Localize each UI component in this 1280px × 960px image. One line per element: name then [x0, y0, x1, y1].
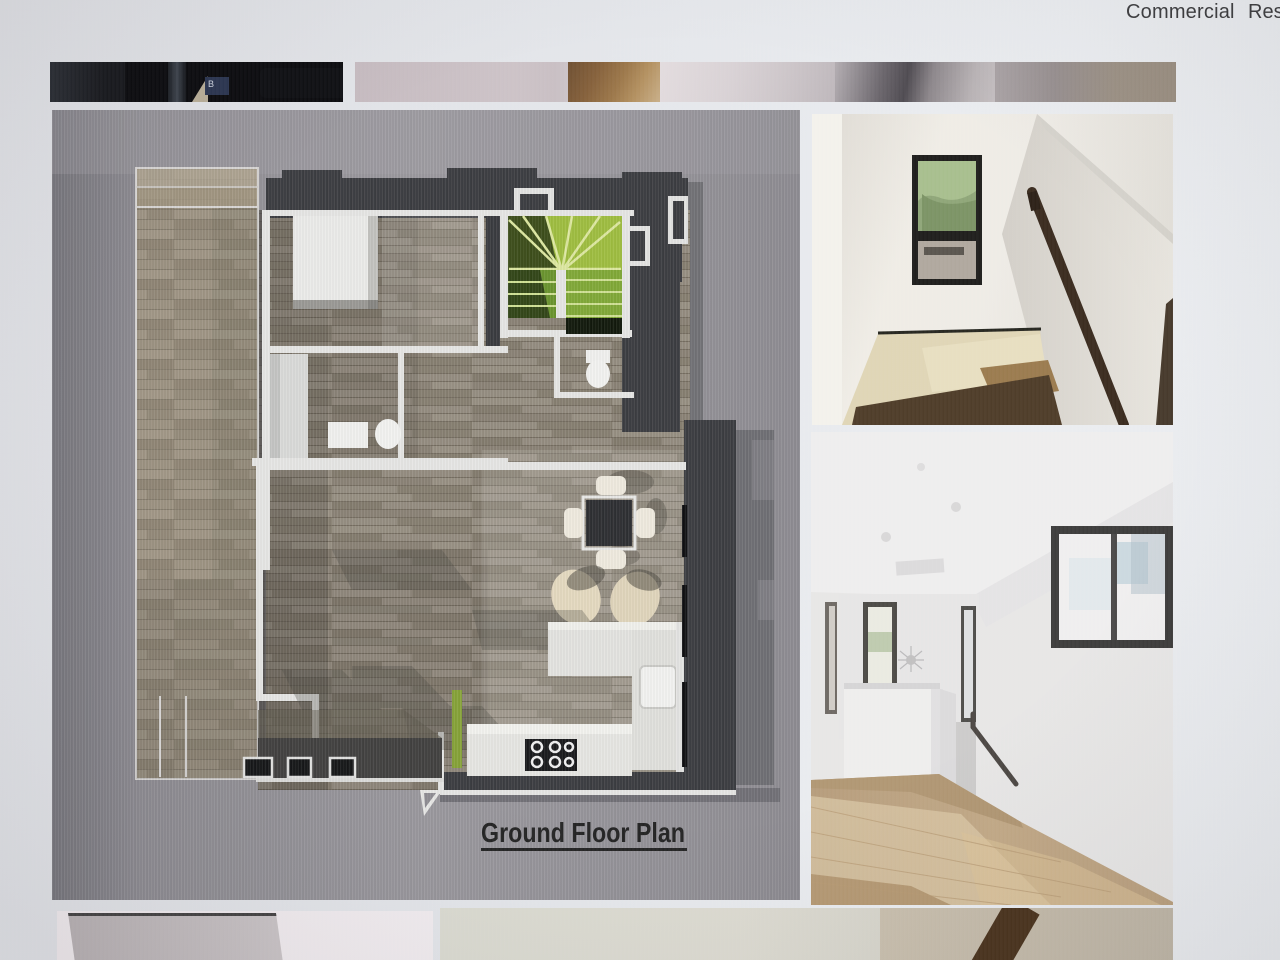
svg-text:Ground Floor Plan: Ground Floor Plan: [481, 817, 685, 848]
